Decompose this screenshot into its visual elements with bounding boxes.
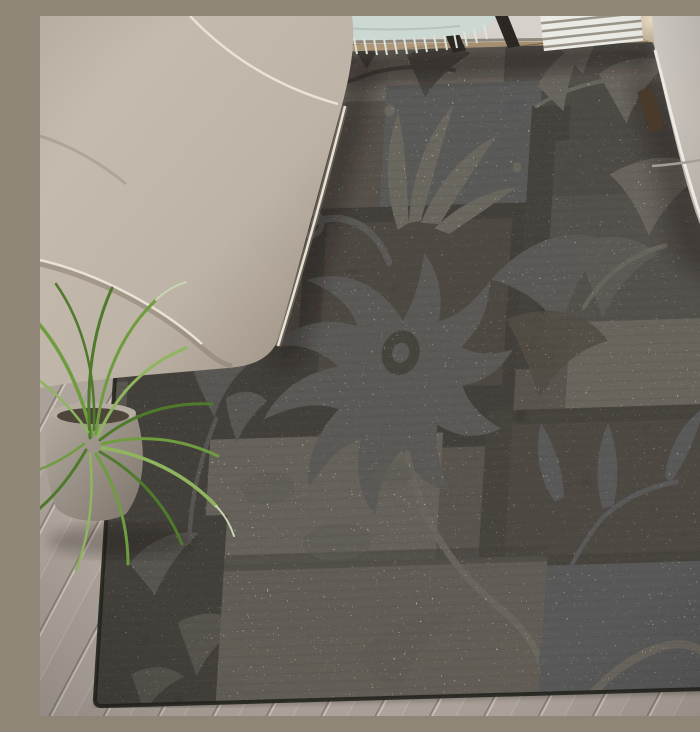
vignette: [40, 16, 700, 716]
scene: Overhead angled view of a distressed pat…: [40, 16, 700, 716]
living-room-photo: [40, 16, 700, 716]
